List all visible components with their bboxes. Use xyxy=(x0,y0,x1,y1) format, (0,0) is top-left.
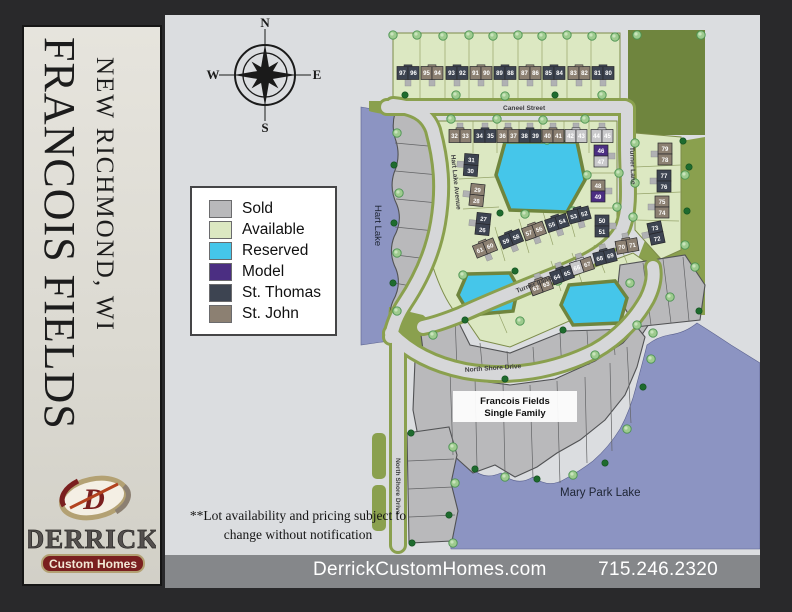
tree-icon xyxy=(393,249,401,257)
tree-icon xyxy=(560,327,566,333)
legend-label: St. Thomas xyxy=(242,284,321,302)
svg-text:43: 43 xyxy=(578,134,585,140)
tree-icon xyxy=(680,138,686,144)
svg-text:33: 33 xyxy=(462,134,469,140)
tree-icon xyxy=(633,321,641,329)
reserved-swatch xyxy=(209,242,232,260)
tree-icon xyxy=(389,31,397,39)
svg-text:87: 87 xyxy=(521,71,528,77)
svg-text:94: 94 xyxy=(434,71,441,77)
svg-text:36: 36 xyxy=(499,134,506,140)
tree-icon xyxy=(493,115,501,123)
st-thomas-swatch xyxy=(209,284,232,302)
tree-icon xyxy=(538,32,546,40)
legend-item-st-thomas: St. Thomas xyxy=(209,282,335,303)
svg-text:84: 84 xyxy=(556,71,563,77)
northeast-grass-block xyxy=(628,30,705,135)
tree-icon xyxy=(446,512,452,518)
svg-text:29: 29 xyxy=(474,188,482,195)
svg-text:97: 97 xyxy=(399,71,406,77)
svg-text:45: 45 xyxy=(604,134,611,140)
tree-icon xyxy=(408,430,414,436)
tree-icon xyxy=(583,171,591,179)
tree-icon xyxy=(563,31,571,39)
svg-text:48: 48 xyxy=(595,184,602,190)
svg-text:39: 39 xyxy=(532,134,539,140)
tree-icon xyxy=(516,317,524,325)
tree-icon xyxy=(514,31,522,39)
svg-text:86: 86 xyxy=(532,71,539,77)
svg-text:96: 96 xyxy=(410,71,417,77)
tree-icon xyxy=(501,92,509,100)
svg-text:44: 44 xyxy=(593,134,600,140)
tree-icon xyxy=(626,279,634,287)
tree-icon xyxy=(602,460,608,466)
svg-text:78: 78 xyxy=(662,158,669,164)
tree-icon xyxy=(502,376,508,382)
phone-number[interactable]: 715.246.2320 xyxy=(598,559,718,581)
logo-tagline: Custom Homes xyxy=(49,557,137,571)
site-plan-panel: Francois Fields Single Family 9796959493… xyxy=(165,15,760,555)
tree-icon xyxy=(598,91,606,99)
tree-icon xyxy=(569,471,577,479)
svg-text:79: 79 xyxy=(662,147,669,153)
tree-icon xyxy=(391,162,397,168)
svg-text:76: 76 xyxy=(661,185,668,191)
model-swatch xyxy=(209,263,232,281)
tree-icon xyxy=(413,31,421,39)
tree-icon xyxy=(512,268,518,274)
tree-icon xyxy=(640,384,646,390)
tree-icon xyxy=(588,32,596,40)
tree-icon xyxy=(613,203,621,211)
tree-icon xyxy=(697,31,705,39)
svg-text:74: 74 xyxy=(659,211,666,217)
tree-icon xyxy=(581,115,589,123)
tree-icon xyxy=(552,92,558,98)
disclaimer-line1: **Lot availability and pricing subject t… xyxy=(190,508,406,523)
footer-bar: DerrickCustomHomes.com 715.246.2320 xyxy=(165,555,760,588)
title-panel: FRANCOIS FIELDS NEW RICHMOND, WI D DERRI… xyxy=(22,25,162,586)
tree-icon xyxy=(666,293,674,301)
disclaimer-line2: change without notification xyxy=(224,527,372,542)
tree-icon xyxy=(684,208,690,214)
svg-text:95: 95 xyxy=(423,71,430,77)
east-pond xyxy=(561,281,627,325)
single-family-callout: Francois Fields Single Family xyxy=(453,391,577,422)
svg-text:41: 41 xyxy=(555,134,562,140)
tree-icon xyxy=(696,308,702,314)
legend-item-sold: Sold xyxy=(209,198,335,219)
flyer-frame: FRANCOIS FIELDS NEW RICHMOND, WI D DERRI… xyxy=(0,0,792,612)
legend: Sold Available Reserved Model St. Thomas… xyxy=(190,186,337,336)
svg-text:47: 47 xyxy=(598,160,605,166)
svg-text:32: 32 xyxy=(451,134,458,140)
legend-item-available: Available xyxy=(209,219,335,240)
legend-item-st-john: St. John xyxy=(209,303,335,324)
svg-text:75: 75 xyxy=(659,200,666,206)
svg-text:80: 80 xyxy=(605,71,612,77)
svg-text:50: 50 xyxy=(599,219,606,225)
tree-icon xyxy=(649,329,657,337)
svg-text:30: 30 xyxy=(467,169,475,175)
svg-text:35: 35 xyxy=(487,134,494,140)
svg-text:31: 31 xyxy=(468,158,476,164)
tree-icon xyxy=(623,425,631,433)
tree-icon xyxy=(449,539,457,547)
sold-swatch xyxy=(209,200,232,218)
svg-text:27: 27 xyxy=(480,217,488,224)
map-label: Caneel Street xyxy=(503,105,546,112)
tree-icon xyxy=(691,263,699,271)
svg-text:49: 49 xyxy=(595,195,602,201)
roadside-strip-1 xyxy=(372,433,386,479)
legend-label: St. John xyxy=(242,305,299,323)
compass-n: N xyxy=(260,15,270,30)
legend-label: Available xyxy=(242,221,305,239)
compass-rose-icon: N E S W xyxy=(205,15,325,135)
tree-icon xyxy=(393,307,401,315)
availability-disclaimer: **Lot availability and pricing subject t… xyxy=(173,507,423,545)
tree-icon xyxy=(391,220,397,226)
compass-e: E xyxy=(313,67,322,82)
st-john-swatch xyxy=(209,305,232,323)
tree-icon xyxy=(534,476,540,482)
svg-text:77: 77 xyxy=(661,174,668,180)
legend-label: Sold xyxy=(242,200,273,218)
available-swatch xyxy=(209,221,232,239)
legend-label: Reserved xyxy=(242,242,308,260)
tree-icon xyxy=(395,189,403,197)
svg-text:83: 83 xyxy=(570,71,577,77)
tree-icon xyxy=(449,443,457,451)
callout-line1: Francois Fields xyxy=(480,396,550,407)
tree-icon xyxy=(521,210,529,218)
svg-text:34: 34 xyxy=(476,134,483,140)
svg-text:92: 92 xyxy=(459,71,466,77)
svg-text:85: 85 xyxy=(545,71,552,77)
map-label: Mary Park Lake xyxy=(560,487,641,499)
derrick-custom-homes-logo: D DERRICK Custom Homes xyxy=(28,472,156,580)
tree-icon xyxy=(447,115,455,123)
svg-text:81: 81 xyxy=(594,71,601,77)
svg-text:28: 28 xyxy=(473,199,481,206)
tree-icon xyxy=(681,241,689,249)
tree-icon xyxy=(611,33,619,41)
tree-icon xyxy=(629,213,637,221)
compass-w: W xyxy=(207,67,220,82)
tree-icon xyxy=(501,473,509,481)
tree-icon xyxy=(390,280,396,286)
svg-text:40: 40 xyxy=(544,134,551,140)
svg-text:38: 38 xyxy=(521,134,528,140)
svg-text:93: 93 xyxy=(448,71,455,77)
tree-icon xyxy=(452,91,460,99)
tree-icon xyxy=(489,32,497,40)
tree-icon xyxy=(465,31,473,39)
legend-label: Model xyxy=(242,263,284,281)
svg-text:42: 42 xyxy=(567,134,574,140)
svg-text:82: 82 xyxy=(581,71,588,77)
tree-icon xyxy=(497,210,503,216)
tree-icon xyxy=(429,331,437,339)
svg-text:37: 37 xyxy=(510,134,517,140)
svg-text:91: 91 xyxy=(472,71,479,77)
svg-text:89: 89 xyxy=(496,71,503,77)
tree-icon xyxy=(633,31,641,39)
legend-item-reserved: Reserved xyxy=(209,240,335,261)
map-label: Hart Lake xyxy=(372,205,383,246)
legend-item-model: Model xyxy=(209,261,335,282)
tree-icon xyxy=(439,32,447,40)
tree-icon xyxy=(402,92,408,98)
svg-text:51: 51 xyxy=(599,230,606,236)
tree-icon xyxy=(647,355,655,363)
tree-icon xyxy=(459,271,467,279)
tree-icon xyxy=(462,317,468,323)
central-pond xyxy=(496,142,585,212)
logo-wordmark: DERRICK xyxy=(28,524,156,554)
svg-text:90: 90 xyxy=(483,71,490,77)
svg-text:46: 46 xyxy=(598,149,605,155)
tree-icon xyxy=(615,169,623,177)
tree-icon xyxy=(686,164,692,170)
tree-icon xyxy=(472,466,478,472)
map-label: Turner Lane xyxy=(628,147,636,185)
tree-icon xyxy=(539,116,547,124)
tree-icon xyxy=(681,171,689,179)
svg-text:88: 88 xyxy=(507,71,514,77)
website-link[interactable]: DerrickCustomHomes.com xyxy=(313,559,547,581)
compass-s: S xyxy=(261,120,268,135)
svg-text:26: 26 xyxy=(479,228,487,235)
tree-icon xyxy=(591,351,599,359)
callout-line2: Single Family xyxy=(484,408,546,419)
tree-icon xyxy=(393,129,401,137)
tree-icon xyxy=(451,479,459,487)
